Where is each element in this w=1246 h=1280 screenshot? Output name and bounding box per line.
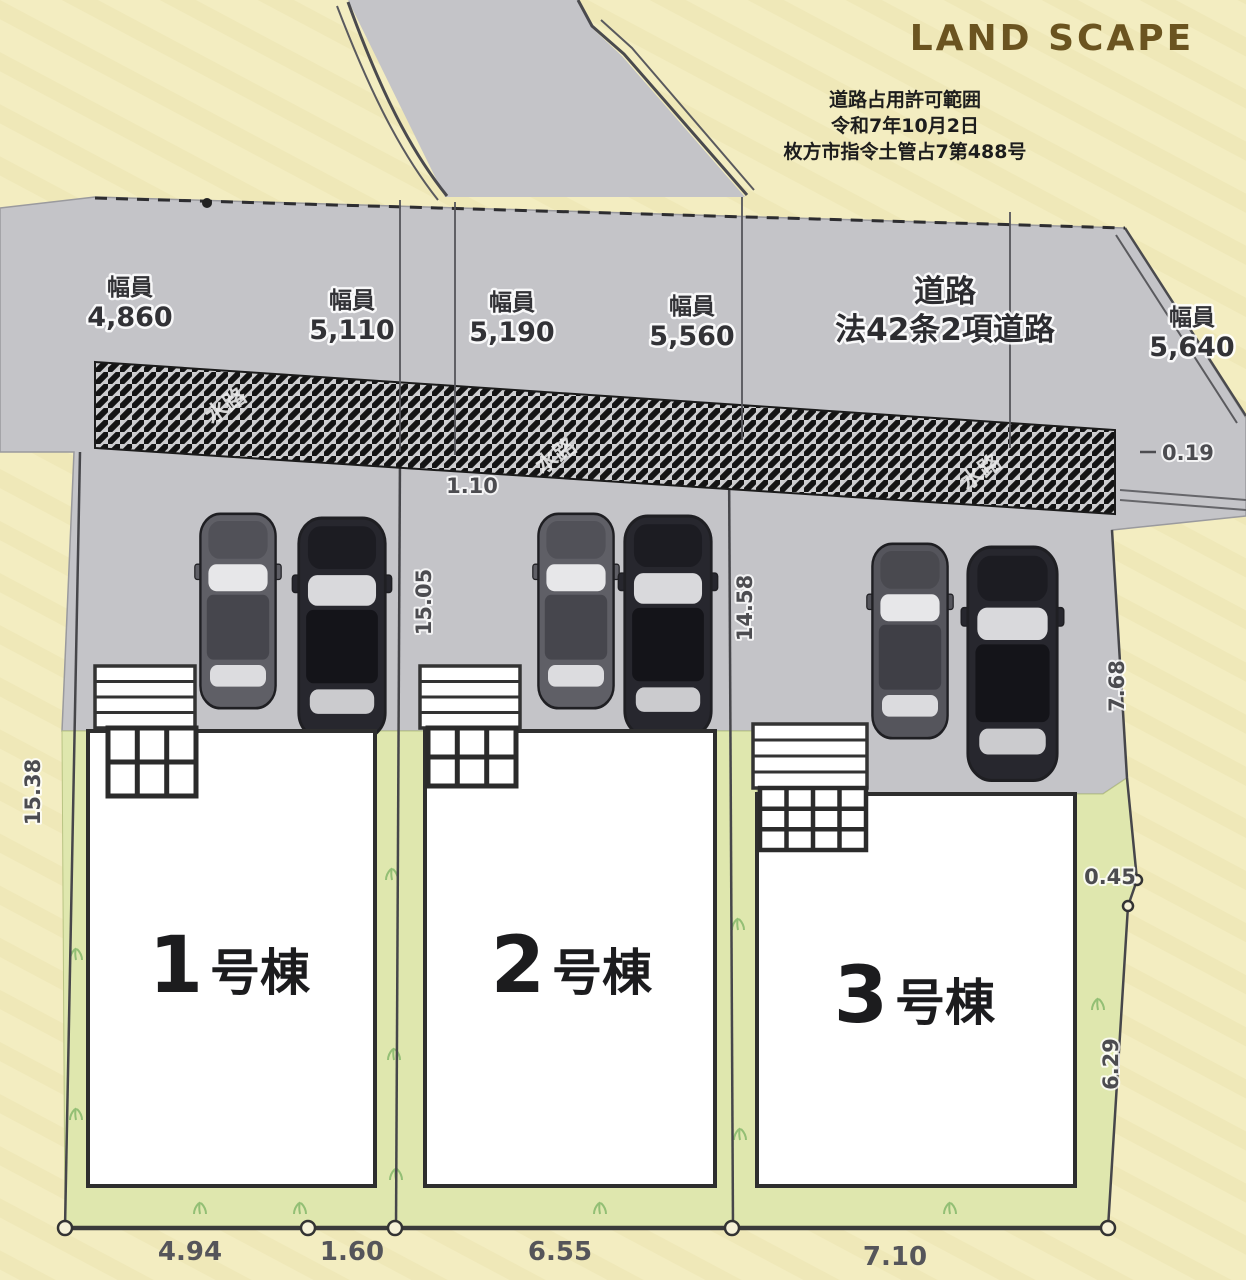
dim-plot2-depth: 14.58	[733, 575, 757, 641]
width-label-4: 幅員	[669, 294, 715, 320]
porch-grid-icon	[428, 728, 516, 786]
dim-plot1-depth: 15.05	[412, 569, 436, 635]
building-3-number: 3	[834, 951, 888, 1041]
width-label-5: 幅員	[1169, 305, 1215, 331]
dim-right-upper: 7.68	[1105, 660, 1129, 712]
dim-bottom-4: 7.10	[863, 1242, 927, 1272]
page-title: LAND SCAPE	[910, 18, 1195, 59]
width-value-1: 4,860	[87, 302, 172, 333]
car-icon	[533, 514, 619, 708]
porch-grid-icon	[760, 788, 866, 850]
width-value-4: 5,560	[649, 321, 734, 352]
width-value-3: 5,190	[469, 317, 554, 348]
dim-waterway-right: 0.19	[1162, 441, 1214, 465]
dim-bottom-2: 1.60	[320, 1237, 384, 1267]
width-value-5: 5,640	[1149, 332, 1234, 363]
car-icon	[292, 518, 391, 738]
permit-line-2: 令和7年10月2日	[831, 114, 979, 137]
porch-grid-icon	[108, 728, 196, 796]
permit-line-3: 枚方市指令土管占7第488号	[784, 140, 1027, 163]
permit-line-1: 道路占用許可範囲	[829, 88, 981, 111]
land-plot-plan: 水路 水路 水路	[0, 0, 1246, 1280]
width-label-1: 幅員	[107, 275, 153, 301]
entrance-steps-icon	[420, 666, 520, 728]
width-label-2: 幅員	[329, 288, 375, 314]
car-icon	[618, 516, 717, 736]
road-name: 道路	[914, 274, 977, 310]
survey-point	[202, 198, 212, 208]
dim-left-depth: 15.38	[21, 759, 45, 825]
building-2-suffix: 号棟	[552, 944, 653, 1002]
dim-bottom-3: 6.55	[528, 1237, 592, 1267]
entrance-steps-icon	[753, 724, 867, 788]
dim-bottom-1: 4.94	[158, 1237, 222, 1267]
entrance-steps-icon	[95, 666, 195, 728]
building-3-suffix: 号棟	[895, 974, 996, 1032]
site-plan-svg: 水路 水路 水路	[0, 0, 1246, 1280]
building-1-number: 1	[149, 921, 203, 1011]
dim-right-jog: 0.45	[1084, 865, 1136, 889]
building-2-number: 2	[491, 921, 545, 1011]
car-icon	[195, 514, 281, 708]
dim-plot1-offset: 1.10	[446, 474, 498, 498]
dim-right-lower: 6.29	[1099, 1038, 1123, 1090]
car-icon	[867, 544, 953, 738]
width-value-2: 5,110	[309, 315, 394, 346]
road-type: 法42条2項道路	[835, 312, 1056, 348]
building-1-suffix: 号棟	[210, 944, 311, 1002]
width-label-3: 幅員	[489, 290, 535, 316]
car-icon	[961, 547, 1064, 780]
